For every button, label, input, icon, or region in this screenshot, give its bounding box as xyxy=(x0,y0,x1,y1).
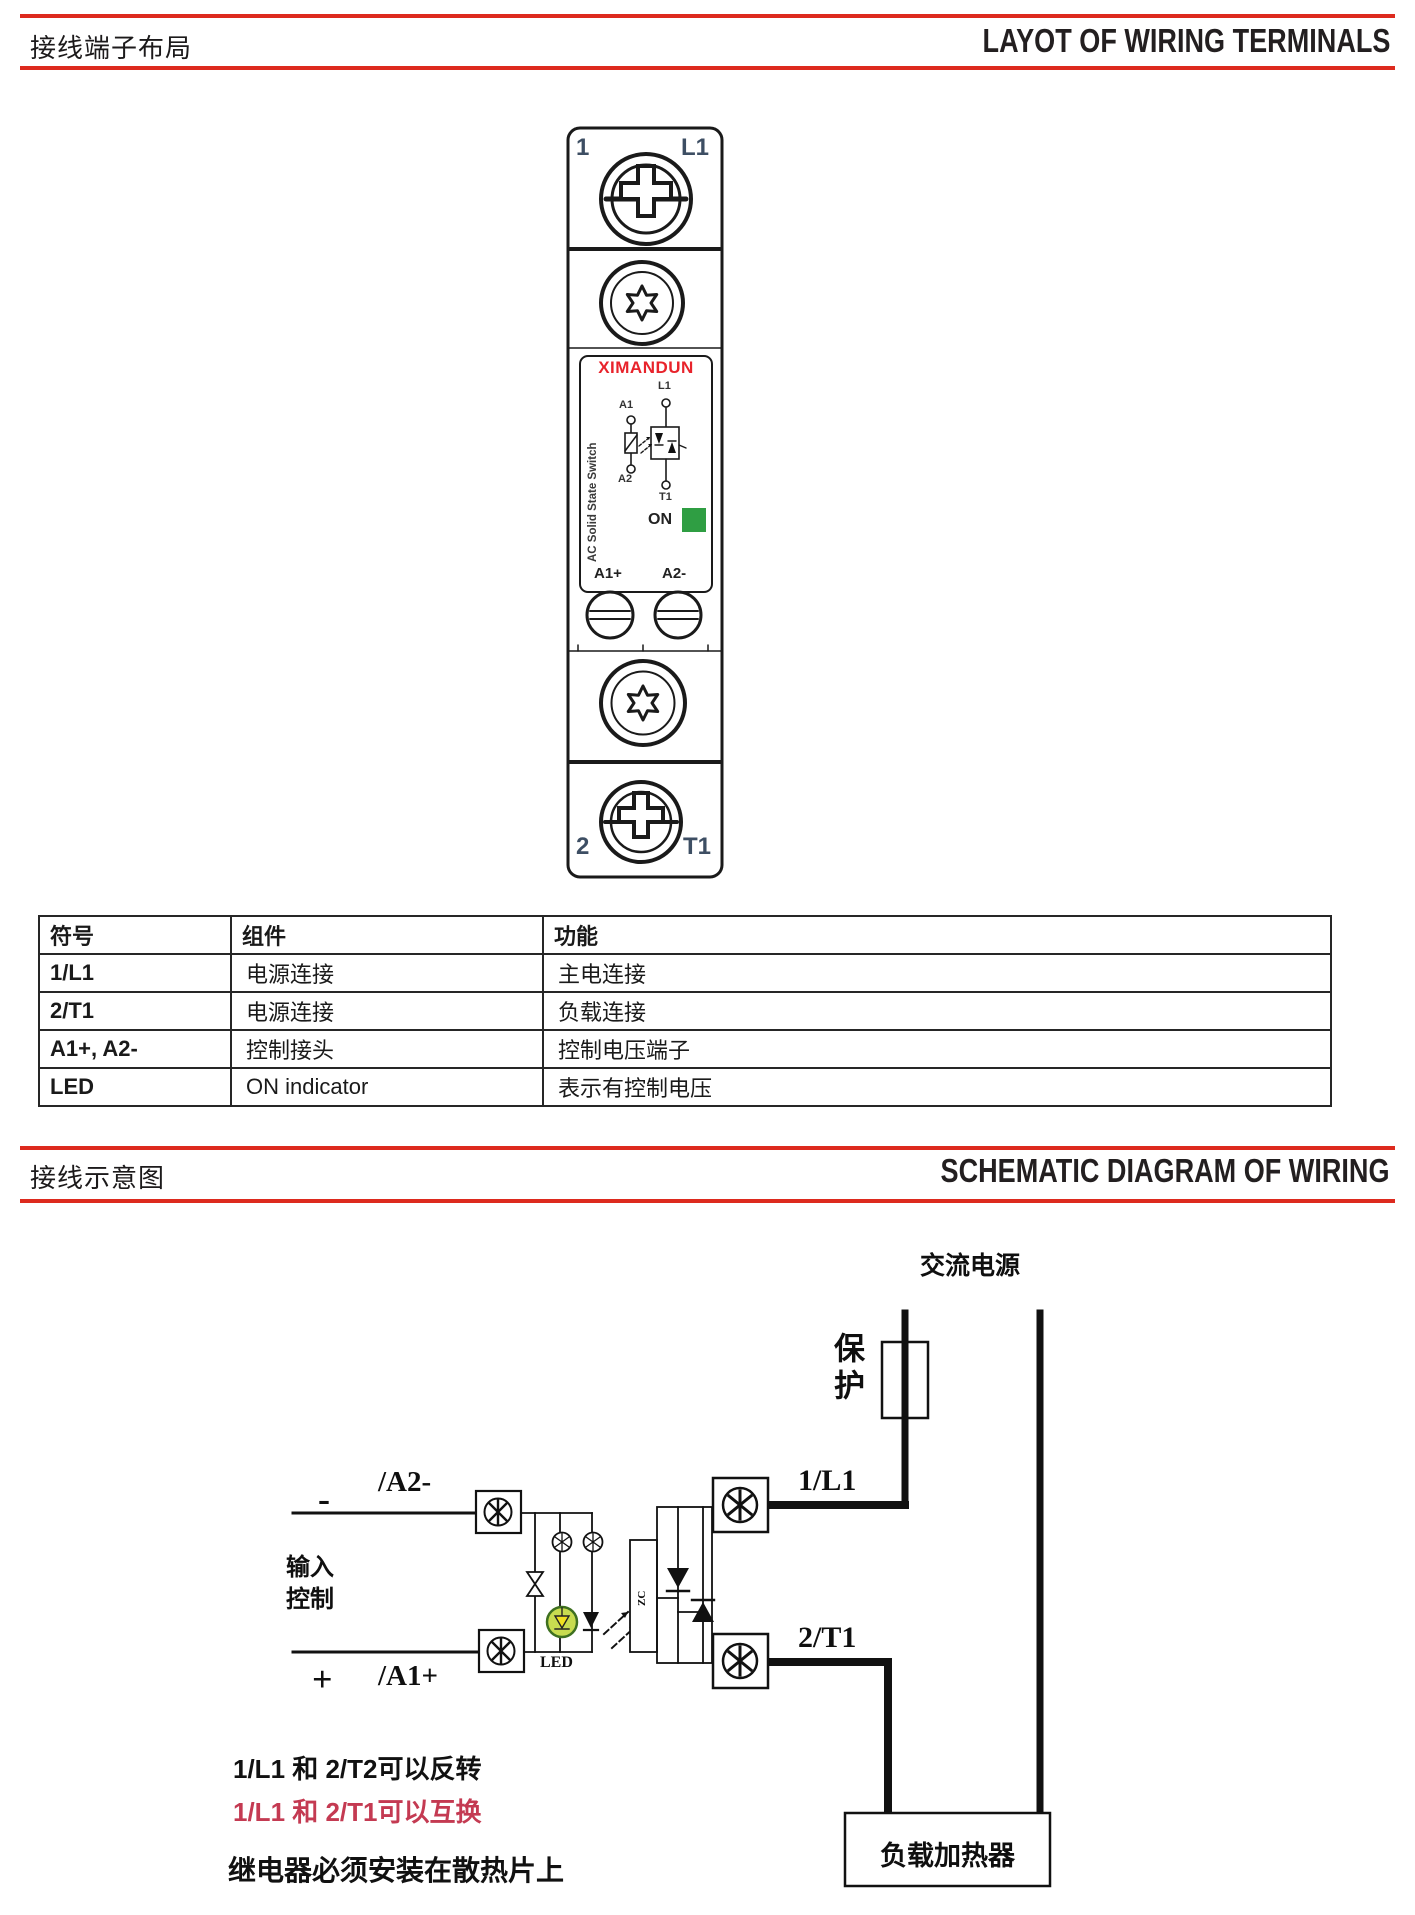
terminal-screw-a2 xyxy=(476,1491,521,1533)
divider-below-title xyxy=(20,66,1395,70)
wire-2t1 xyxy=(768,1662,888,1813)
terminal-a1-label: A1+ xyxy=(594,565,622,582)
divider-section2-bottom xyxy=(20,1199,1395,1203)
col-header-function: 功能 xyxy=(543,916,1331,954)
cell-symbol: 2/T1 xyxy=(39,992,231,1030)
label-a2-wire: /A2- xyxy=(378,1466,431,1499)
zc-label: ZC xyxy=(636,1591,648,1606)
led-text-label: LED xyxy=(540,1654,573,1672)
col-header-component: 组件 xyxy=(231,916,543,954)
cell-function: 主电连接 xyxy=(543,954,1331,992)
cell-component: ON indicator xyxy=(231,1068,543,1106)
terminals-table: 符号 组件 功能 1/L1 电源连接 主电连接 2/T1 电源连接 负载连接 A… xyxy=(38,915,1332,1107)
note-interchangeable: 1/L1 和 2/T1可以互换 xyxy=(233,1792,482,1829)
cell-symbol: 1/L1 xyxy=(39,954,231,992)
section1-title-cn: 接线端子布局 xyxy=(30,28,192,65)
cell-component: 控制接头 xyxy=(231,1030,543,1068)
relay-device-figure xyxy=(540,110,770,900)
on-label: ON xyxy=(648,511,672,529)
terminal-a2-label: A2- xyxy=(662,565,686,582)
load-heater-label: 负载加热器 xyxy=(845,1834,1050,1873)
cell-component: 电源连接 xyxy=(231,954,543,992)
device-side-text: AC Solid State Switch xyxy=(587,432,599,562)
cell-function: 表示有控制电压 xyxy=(543,1068,1331,1106)
device-brand: XIMANDUN xyxy=(580,358,712,378)
datasheet-page: 接线端子布局 LAYOT OF WIRING TERMINALS xyxy=(0,0,1415,1915)
symbol-l1-label: L1 xyxy=(658,380,671,392)
table-header-row: 符号 组件 功能 xyxy=(39,916,1331,954)
col-header-symbol: 符号 xyxy=(39,916,231,954)
divider-top xyxy=(20,14,1395,18)
device-corner-1: 1 xyxy=(576,134,589,162)
label-2t1: 2/T1 xyxy=(798,1621,856,1655)
input-circuit xyxy=(521,1513,636,1652)
terminal-screw-a1 xyxy=(479,1630,524,1672)
table-row: 1/L1 电源连接 主电连接 xyxy=(39,954,1331,992)
input-control-label: 输入 控制 xyxy=(286,1552,334,1616)
section1-title-en: LAYOT OF WIRING TERMINALS xyxy=(982,22,1390,60)
section2-title-en: SCHEMATIC DIAGRAM OF WIRING xyxy=(941,1152,1390,1190)
output-stage xyxy=(630,1507,714,1663)
plus-sign: + xyxy=(312,1658,333,1700)
cell-component: 电源连接 xyxy=(231,992,543,1030)
cell-function: 负载连接 xyxy=(543,992,1331,1030)
on-led-square xyxy=(682,508,706,532)
table-row: 2/T1 电源连接 负载连接 xyxy=(39,992,1331,1030)
ac-power-label: 交流电源 xyxy=(920,1246,1020,1282)
cell-symbol: LED xyxy=(39,1068,231,1106)
minus-sign: - xyxy=(318,1478,330,1520)
device-corner-t1: T1 xyxy=(683,833,711,861)
label-1l1: 1/L1 xyxy=(798,1464,856,1498)
device-corner-l1: L1 xyxy=(681,134,709,162)
symbol-a2-label: A2 xyxy=(618,473,632,485)
table-row: A1+, A2- 控制接头 控制电压端子 xyxy=(39,1030,1331,1068)
symbol-t1-label: T1 xyxy=(659,491,672,503)
led-symbol xyxy=(547,1607,577,1637)
cell-function: 控制电压端子 xyxy=(543,1030,1331,1068)
symbol-a1-label: A1 xyxy=(619,399,633,411)
section2-title-cn: 接线示意图 xyxy=(30,1158,165,1195)
cell-symbol: A1+, A2- xyxy=(39,1030,231,1068)
device-label-area xyxy=(580,356,712,592)
protection-label: 保护 xyxy=(824,1332,869,1406)
terminal-screw-1l1 xyxy=(713,1478,768,1532)
note-heatsink: 继电器必须安装在散热片上 xyxy=(228,1849,564,1889)
terminal-screw-2t1 xyxy=(713,1634,768,1688)
device-corner-2: 2 xyxy=(576,833,589,861)
divider-section2-top xyxy=(20,1146,1395,1150)
label-a1-wire: /A1+ xyxy=(378,1660,438,1693)
note-reversible: 1/L1 和 2/T2可以反转 xyxy=(233,1749,482,1786)
table-row: LED ON indicator 表示有控制电压 xyxy=(39,1068,1331,1106)
